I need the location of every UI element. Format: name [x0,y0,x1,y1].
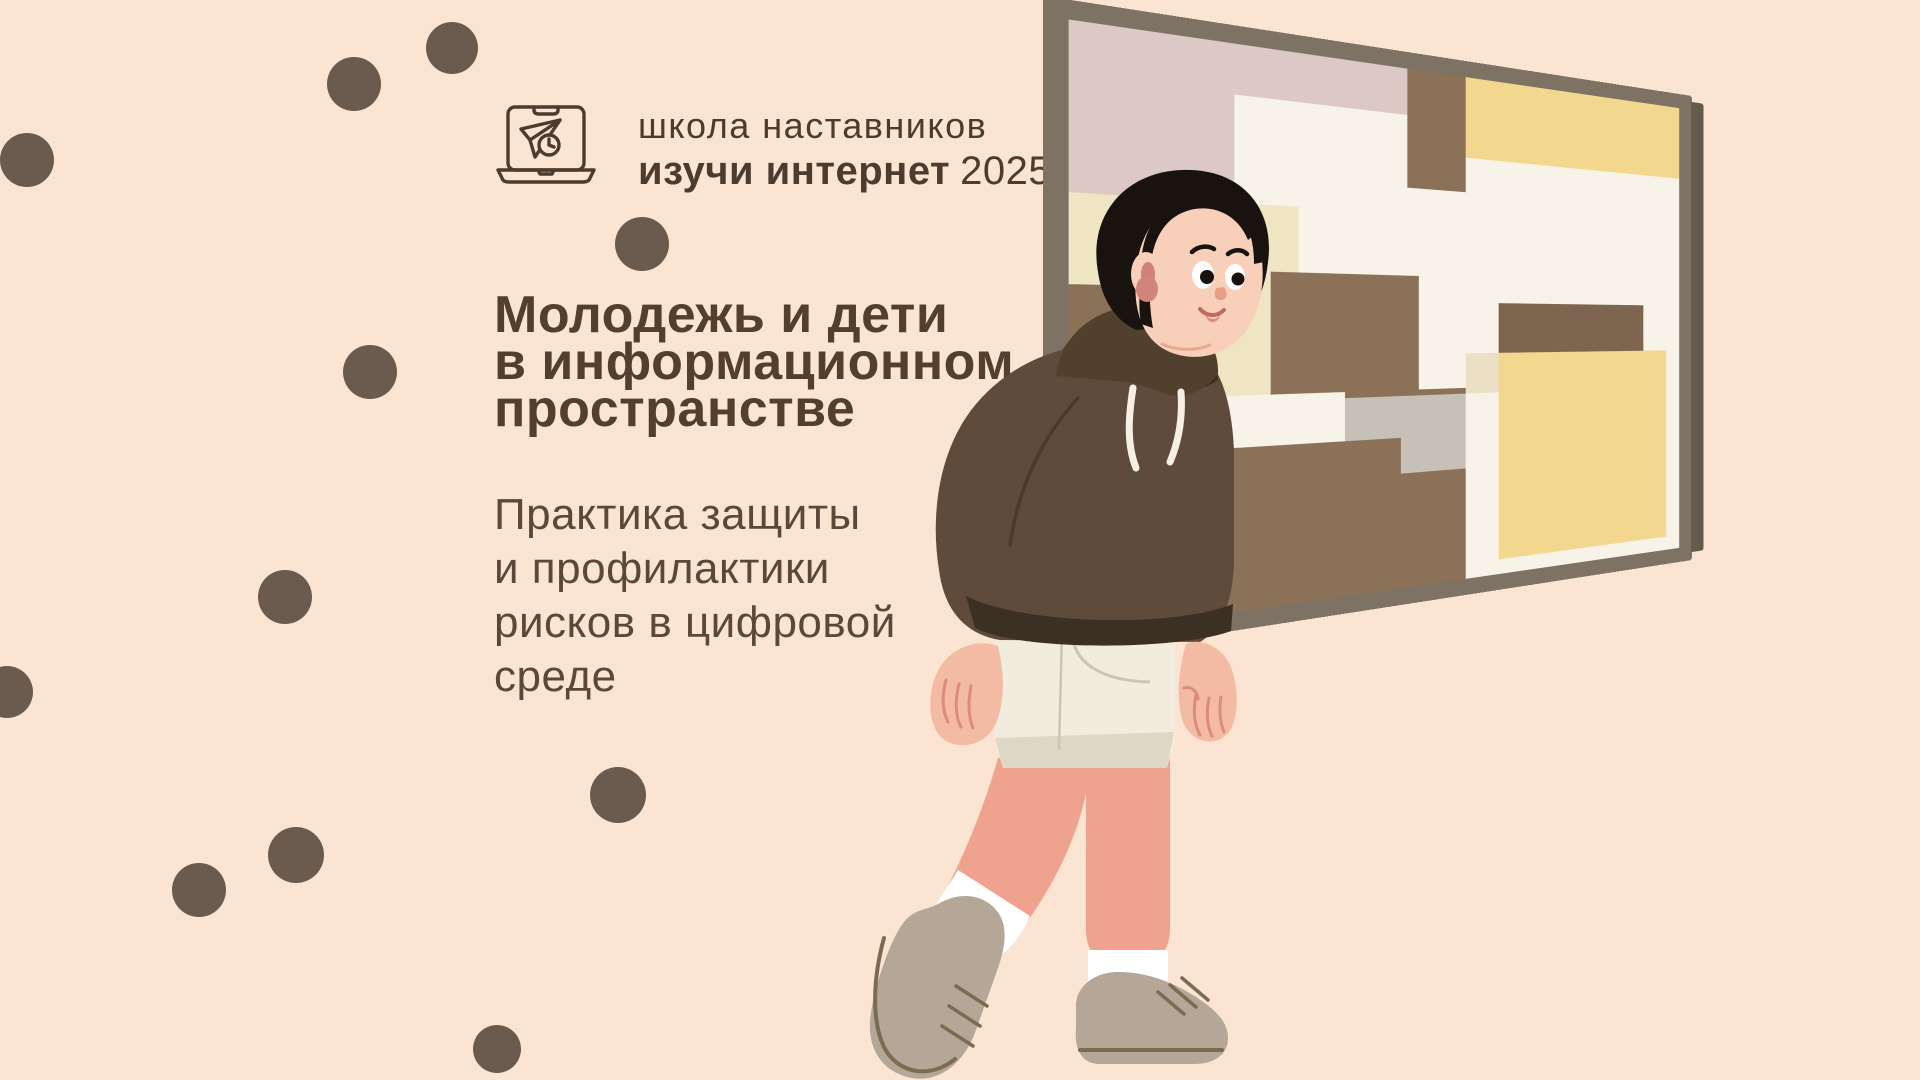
painting-block [1270,272,1419,395]
decor-dot [343,345,397,399]
brand-lockup: школа наставников изучи интернет2025 [494,104,1051,194]
brand-text: школа наставников изучи интернет2025 [638,104,1051,194]
decor-dot [0,133,54,187]
decor-dot [258,570,312,624]
painting-block [1499,350,1666,559]
painting-block [1499,303,1644,352]
painting-block [1407,69,1466,193]
subtitle-line-2: и профилактики [494,542,896,596]
boy-front-leg [870,758,1092,1079]
painting-canvas [1069,19,1680,636]
page-subtitle: Практика защиты и профилактики рисков в … [494,488,896,704]
decor-dot [426,22,478,74]
subtitle-line-4: среде [494,650,896,704]
brand-line-2-bold: изучи интернет [638,149,950,193]
boy-far-hand [930,643,1003,745]
poster-background: школа наставников изучи интернет2025 Мол… [0,0,1920,1080]
painting-block [1182,392,1344,450]
decor-dot [268,827,324,883]
brand-line-1: школа наставников [638,104,1051,148]
subtitle-line-3: рисков в цифровой [494,596,896,650]
page-title: Молодежь и дети в информационном простра… [494,292,1014,433]
title-line-2: в информационном [494,339,1014,386]
decor-dot [172,863,226,917]
decor-dot [0,666,33,718]
brand-line-2: изучи интернет2025 [638,148,1051,194]
decor-dot [327,57,381,111]
painting-block [1466,353,1499,394]
title-line-1: Молодежь и дети [494,292,1014,339]
subtitle-line-1: Практика защиты [494,488,896,542]
painting-block [1466,77,1679,178]
painting-block [1401,433,1466,473]
wall-painting [1043,0,1692,660]
decor-dot [590,767,646,823]
painting-block [1234,95,1407,214]
decor-dot [473,1025,521,1073]
boy-near-hand [1179,642,1237,742]
laptop-paper-plane-icon [494,104,598,186]
title-line-3: пространстве [494,386,1014,433]
brand-year: 2025 [960,149,1051,193]
decor-dot [615,217,669,271]
boy-back-leg [1076,750,1228,1064]
